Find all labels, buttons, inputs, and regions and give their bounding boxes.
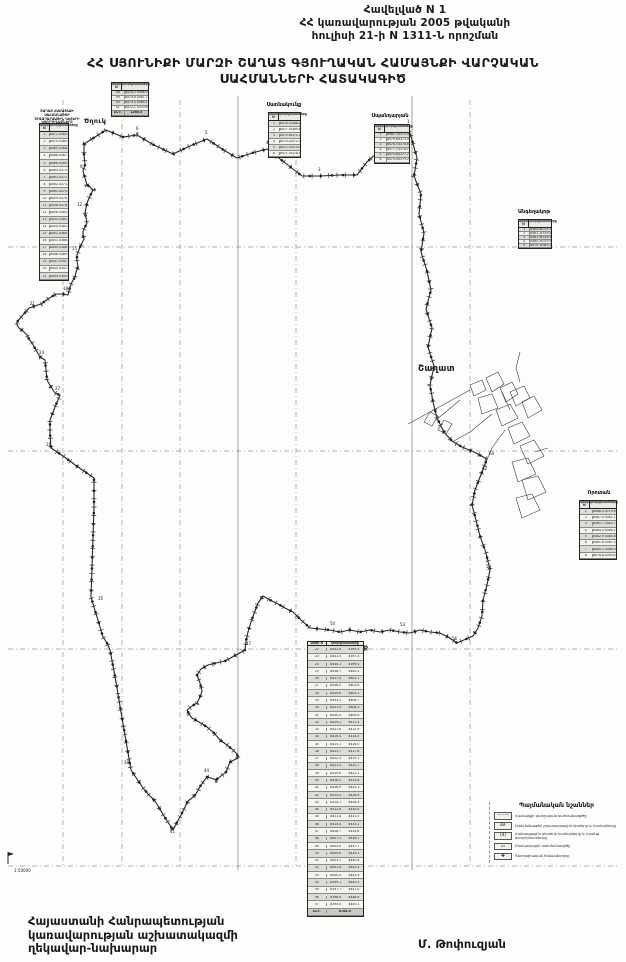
table-row: 508404.64439.3 bbox=[308, 850, 363, 857]
boundary-point-number: 5 bbox=[205, 130, 208, 135]
legend: Պայմանական նշաններ —··—Համայնքի վարչական… bbox=[489, 802, 619, 863]
table-title-angeghakot: Անգեղակոթ bbox=[506, 210, 562, 216]
table-row: 128456.84380.1 bbox=[40, 209, 68, 216]
boundary-line bbox=[17, 127, 490, 830]
boundary-point-number: 38 bbox=[124, 760, 130, 765]
col-header-point: կետի N bbox=[112, 83, 122, 90]
boundary-ticks bbox=[17, 127, 490, 830]
table-row: 368423.74417.6 bbox=[308, 748, 363, 755]
footer-signature-block: Հայաստանի Հանրապետության կառավարության ա… bbox=[28, 915, 328, 956]
boundary-point-number: 41 bbox=[170, 829, 176, 834]
legend-item-label: Բնակավայրի սահմանագիծը bbox=[515, 844, 570, 848]
table-row: 338427.84412.9 bbox=[308, 726, 363, 733]
legend-title: Պայմանական նշաններ bbox=[494, 802, 619, 809]
col-header-point: կետի N bbox=[580, 501, 590, 508]
legend-symbol-icon: 38· bbox=[494, 822, 512, 830]
table-row: 528401.84442.4 bbox=[308, 865, 363, 872]
table-row: 198447.14391.2 bbox=[40, 259, 68, 266]
coord-table-vorotan: կետի Nկոորդինատները 18488.44379.628487.0… bbox=[579, 500, 617, 560]
table-row: 88478.84390.4 bbox=[580, 553, 616, 559]
table-row: 208445.64392.8 bbox=[40, 266, 68, 273]
col-header-coords: կոորդինատները bbox=[122, 83, 150, 90]
table-row: 378422.34419.1 bbox=[308, 756, 363, 763]
legend-item: —··—Համայնքի վարչական սահմանագիծը bbox=[494, 812, 619, 820]
col-header-point: կետի N bbox=[375, 125, 385, 132]
col-header-point: կետի N bbox=[519, 220, 529, 227]
boundary-point-number: 64 bbox=[489, 451, 495, 456]
col-header-coords: կոորդինատները bbox=[590, 501, 618, 508]
document-header: Հավելված N 1 ՀՀ կառավարության 2005 թվակա… bbox=[210, 4, 600, 43]
table-row: 58479.14381.5 bbox=[519, 244, 551, 248]
table-row: 68474.44379.2 bbox=[375, 158, 409, 163]
boundary-point-number: 15 bbox=[72, 246, 78, 251]
col-header-point: կետի N bbox=[308, 642, 327, 645]
boundary-points bbox=[17, 127, 490, 830]
footer-signer-name: Մ. Թոփուզյան bbox=[418, 937, 618, 951]
table-row: 428415.54426.9 bbox=[308, 792, 363, 799]
table-row: 388421.04420.7 bbox=[308, 763, 363, 770]
table-row: 468410.04433.1 bbox=[308, 821, 363, 828]
legend-item: ✚Գեոդեզիական հենակետերը bbox=[494, 853, 619, 861]
table-row: 88462.54373.8 bbox=[40, 181, 68, 188]
table-row: 538400.54443.9 bbox=[308, 872, 363, 879]
table-row: 18472.44363.1 bbox=[40, 132, 68, 139]
col-header-coords: կոորդինատները bbox=[50, 124, 78, 131]
boundary-point-number: 59 bbox=[486, 564, 492, 569]
legend-item: ▭Բնակավայրի սահմանագիծը bbox=[494, 843, 619, 851]
legend-symbol-icon: ▭ bbox=[494, 843, 512, 851]
table-row: 78463.94372.3 bbox=[40, 174, 68, 181]
legend-item-label: Գեոդեզիական հենակետերը bbox=[515, 854, 569, 858]
boundary-point-number: 27 bbox=[55, 386, 61, 391]
boundary-point-number: 21 bbox=[30, 301, 36, 306]
table-row: 478408.74434.6 bbox=[308, 828, 363, 835]
label-neighbor-tsghuk: Ծղուկ bbox=[84, 117, 106, 125]
boundary-point-number: 50 bbox=[330, 621, 336, 626]
scanned-map-page: 1234567912151821242731353841444750535659… bbox=[0, 0, 626, 962]
coord-table-spandaryan: կետի Nկոորդինատները 18481.24371.428479.8… bbox=[374, 124, 410, 164]
table-row: 348426.44414.5 bbox=[308, 734, 363, 741]
col-header-coords: կոորդինատները bbox=[327, 642, 363, 645]
legend-item: (4)Հանգուցային կետերի համարները և դրանց … bbox=[494, 832, 619, 840]
table-row: 328429.24411.4 bbox=[308, 719, 363, 726]
legend-item-label: Հանգուցային կետերի համարները և դրանց կոո… bbox=[515, 832, 619, 840]
boundary-point-number: 24 bbox=[39, 350, 45, 355]
boundary-point-number: 56 bbox=[452, 636, 458, 641]
coord-table-top: կետի Nկոորդինատները 488476.24366.0498474… bbox=[111, 82, 149, 117]
table-row: 68465.24370.6 bbox=[40, 167, 68, 174]
table-row: 148454.14383.2 bbox=[40, 224, 68, 231]
table-row: 318430.54409.8 bbox=[308, 712, 363, 719]
table-row: 178449.84388.0 bbox=[40, 245, 68, 252]
coord-table-sarnakunk: կետի Nկոորդինատները 18478.34368.228477.0… bbox=[268, 112, 301, 158]
table-title-spandaryan: Սպանդարյան bbox=[360, 114, 420, 120]
table-row: 138455.44381.6 bbox=[40, 217, 68, 224]
table-row: 288434.64405.2 bbox=[308, 690, 363, 697]
table-row: 188448.54389.5 bbox=[40, 252, 68, 259]
col-header-point: կետի N bbox=[40, 124, 50, 131]
legend-item-label: Համայնքի վարչական սահմանագիծը bbox=[515, 814, 587, 818]
table-row: 108459.64376.9 bbox=[40, 195, 68, 202]
table-row: 418416.94425.3 bbox=[308, 785, 363, 792]
table-row: 558397.74447.0 bbox=[308, 887, 363, 894]
table-row: 228442.84395.9 bbox=[308, 646, 363, 653]
table-row: 238441.54397.4 bbox=[308, 654, 363, 661]
table-row: 298433.34406.7 bbox=[308, 697, 363, 704]
table-row: 258438.74400.5 bbox=[308, 668, 363, 675]
table-row: 518403.24440.8 bbox=[308, 858, 363, 865]
table-row: 398419.64422.2 bbox=[308, 770, 363, 777]
table-row: 268437.44402.1 bbox=[308, 676, 363, 683]
legend-item-label: Սահմանագծի շրջադարձային կետերը և համարնե… bbox=[515, 824, 616, 828]
legend-item: 38·Սահմանագծի շրջադարձային կետերը և համա… bbox=[494, 822, 619, 830]
table-row: 438414.14428.4 bbox=[308, 799, 363, 806]
boundary-point-number: 53 bbox=[400, 622, 406, 627]
col-header-point: կետի N bbox=[269, 113, 279, 120]
table-title-sarnakunk: Սառնակունք bbox=[256, 103, 312, 109]
table-row: 28470.94364.8 bbox=[40, 139, 68, 146]
col-header-coords: կոորդինատները bbox=[279, 113, 307, 120]
table-row: 568396.44448.6 bbox=[308, 894, 363, 901]
table-row: 488407.34436.2 bbox=[308, 836, 363, 843]
table-row: 548399.14445.5 bbox=[308, 879, 363, 886]
table-row: 458411.44431.5 bbox=[308, 814, 363, 821]
scale-note: 1:50000 bbox=[14, 868, 54, 873]
table-row: 498405.94437.7 bbox=[308, 843, 363, 850]
survey-mark-icon bbox=[8, 852, 14, 864]
col-header-coords: կոորդինատները bbox=[385, 125, 413, 132]
page-title: ՀՀ ՍՅՈՒՆԻՔԻ ՄԱՐԶԻ ՇԱՂԱՏ ԳՅՈՒՂԱԿԱՆ ՀԱՄԱՅՆ… bbox=[20, 55, 606, 87]
boundary-point-number: 3 bbox=[318, 167, 321, 172]
table-row: 38469.54366.2 bbox=[40, 146, 68, 153]
table-row: ԸՆԴ.1260.5 bbox=[112, 111, 148, 116]
boundary-point-number: 6 bbox=[136, 126, 139, 131]
boundary-point-number: 18 bbox=[63, 286, 69, 291]
legend-symbol-icon: (4) bbox=[494, 832, 512, 840]
table-row: 168451.24386.3 bbox=[40, 238, 68, 245]
table-row: 278436.04403.6 bbox=[308, 683, 363, 690]
table-row: 408418.24423.8 bbox=[308, 777, 363, 784]
legend-symbol-icon: —··— bbox=[494, 812, 512, 820]
table-row: 248440.14399.0 bbox=[308, 661, 363, 668]
table-row: 308431.94408.3 bbox=[308, 705, 363, 712]
table-row: 68471.54376.0 bbox=[269, 151, 300, 157]
label-community-shaghat: Շաղատ bbox=[418, 364, 455, 374]
table-title-vorotan: Որոտան bbox=[578, 491, 620, 497]
boundary-point-number: 62 bbox=[482, 466, 488, 471]
village-parcels bbox=[408, 352, 548, 518]
boundary-point-number: 44 bbox=[204, 768, 210, 773]
table-row: 58466.84369.4 bbox=[40, 160, 68, 167]
table-row: 48468.14367.9 bbox=[40, 153, 68, 160]
table-row: 358425.14416.0 bbox=[308, 741, 363, 748]
table-row: 98461.04375.2 bbox=[40, 188, 68, 195]
boundary-point-number: 12 bbox=[77, 202, 83, 207]
table-row: 448412.84430.0 bbox=[308, 807, 363, 814]
table-row: 118458.34378.4 bbox=[40, 202, 68, 209]
col-header-coords: կոորդինատները bbox=[529, 220, 557, 227]
coord-table-angeghakot: կետի Nկոորդինատները 18484.64375.328483.2… bbox=[518, 219, 552, 249]
boundary-point-number: 31 bbox=[46, 442, 52, 447]
table-row: 218444.24394.3 bbox=[40, 273, 68, 280]
legend-symbol-icon: ✚ bbox=[494, 853, 512, 861]
boundary-point-number: 47 bbox=[246, 641, 252, 646]
table-row: 158452.74384.9 bbox=[40, 231, 68, 238]
boundary-point-number: 35 bbox=[98, 596, 104, 601]
coord-table-left: կետի Nկոորդինատները 18472.44363.128470.9… bbox=[39, 123, 69, 281]
table-row: 578395.04450.1 bbox=[308, 901, 363, 908]
coord-table-bottom: կետի Nկոորդինատները 228442.84395.9238441… bbox=[307, 641, 364, 917]
